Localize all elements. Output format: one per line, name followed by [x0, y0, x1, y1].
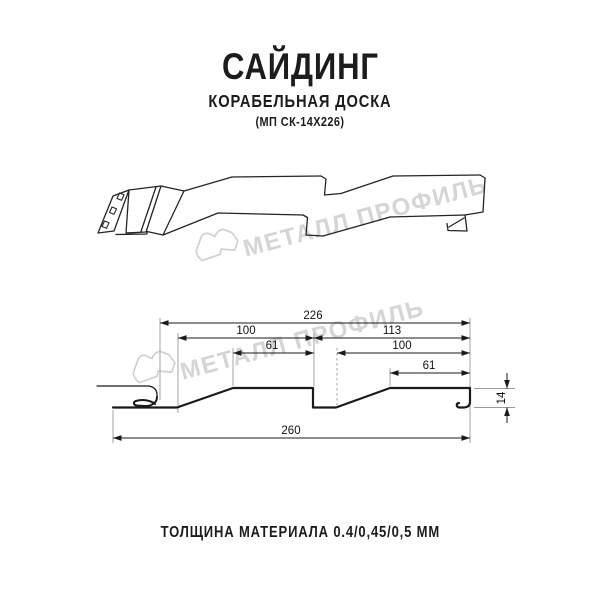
dim-label-61-right: 61	[423, 360, 436, 372]
step-near	[303, 215, 323, 236]
thickness-note-text: ТОЛЩИНА МАТЕРИАЛА 0.4/0,45/0,5 ММ	[160, 524, 439, 542]
dim-label-100-right: 100	[392, 340, 411, 352]
dim-label-226: 226	[303, 310, 322, 322]
page-title: САЙДИНГ	[0, 46, 600, 88]
thickness-note: ТОЛЩИНА МАТЕРИАЛА 0.4/0,45/0,5 ММ	[0, 524, 600, 542]
slope1-far-edge	[161, 177, 232, 191]
dim-label-100-left: 100	[236, 325, 255, 337]
flange-holes	[102, 193, 124, 228]
panel-near-edge-left	[147, 213, 303, 235]
adjacent-panel-edge	[97, 386, 157, 397]
slope2-far-edge	[341, 176, 393, 194]
product-diagram-page: САЙДИНГ КОРАБЕЛЬНАЯ ДОСКА (МП СК-14Х226)…	[0, 0, 600, 600]
face1-far-edge	[232, 176, 321, 177]
face2-far-edge	[393, 175, 480, 176]
face2-near-edge	[390, 215, 465, 217]
dim-label-260: 260	[281, 425, 300, 437]
dim-label-14: 14	[496, 391, 508, 404]
step-far	[321, 176, 341, 195]
left-lock-hook	[134, 397, 157, 406]
siding-cross-section-drawing: 226 100 113 61 100 61 260 14	[0, 295, 600, 460]
slope2-near-edge	[323, 217, 390, 236]
page-subtitle-text: КОРАБЕЛЬНАЯ ДОСКА	[208, 91, 391, 112]
right-end-fold	[465, 175, 485, 215]
extension-lines	[113, 318, 515, 443]
siding-perspective-drawing	[80, 150, 500, 280]
dim-label-61-left: 61	[266, 340, 279, 352]
page-title-text: САЙДИНГ	[222, 46, 379, 88]
profile-section	[97, 386, 470, 408]
product-code: (МП СК-14Х226)	[0, 114, 600, 129]
dim-label-113: 113	[383, 325, 401, 337]
page-subtitle: КОРАБЕЛЬНАЯ ДОСКА	[0, 91, 600, 112]
profile-outline	[113, 388, 470, 408]
product-code-text: (МП СК-14Х226)	[256, 114, 345, 129]
right-hook-inner-edge	[449, 218, 464, 227]
dimension-lines	[113, 323, 507, 438]
